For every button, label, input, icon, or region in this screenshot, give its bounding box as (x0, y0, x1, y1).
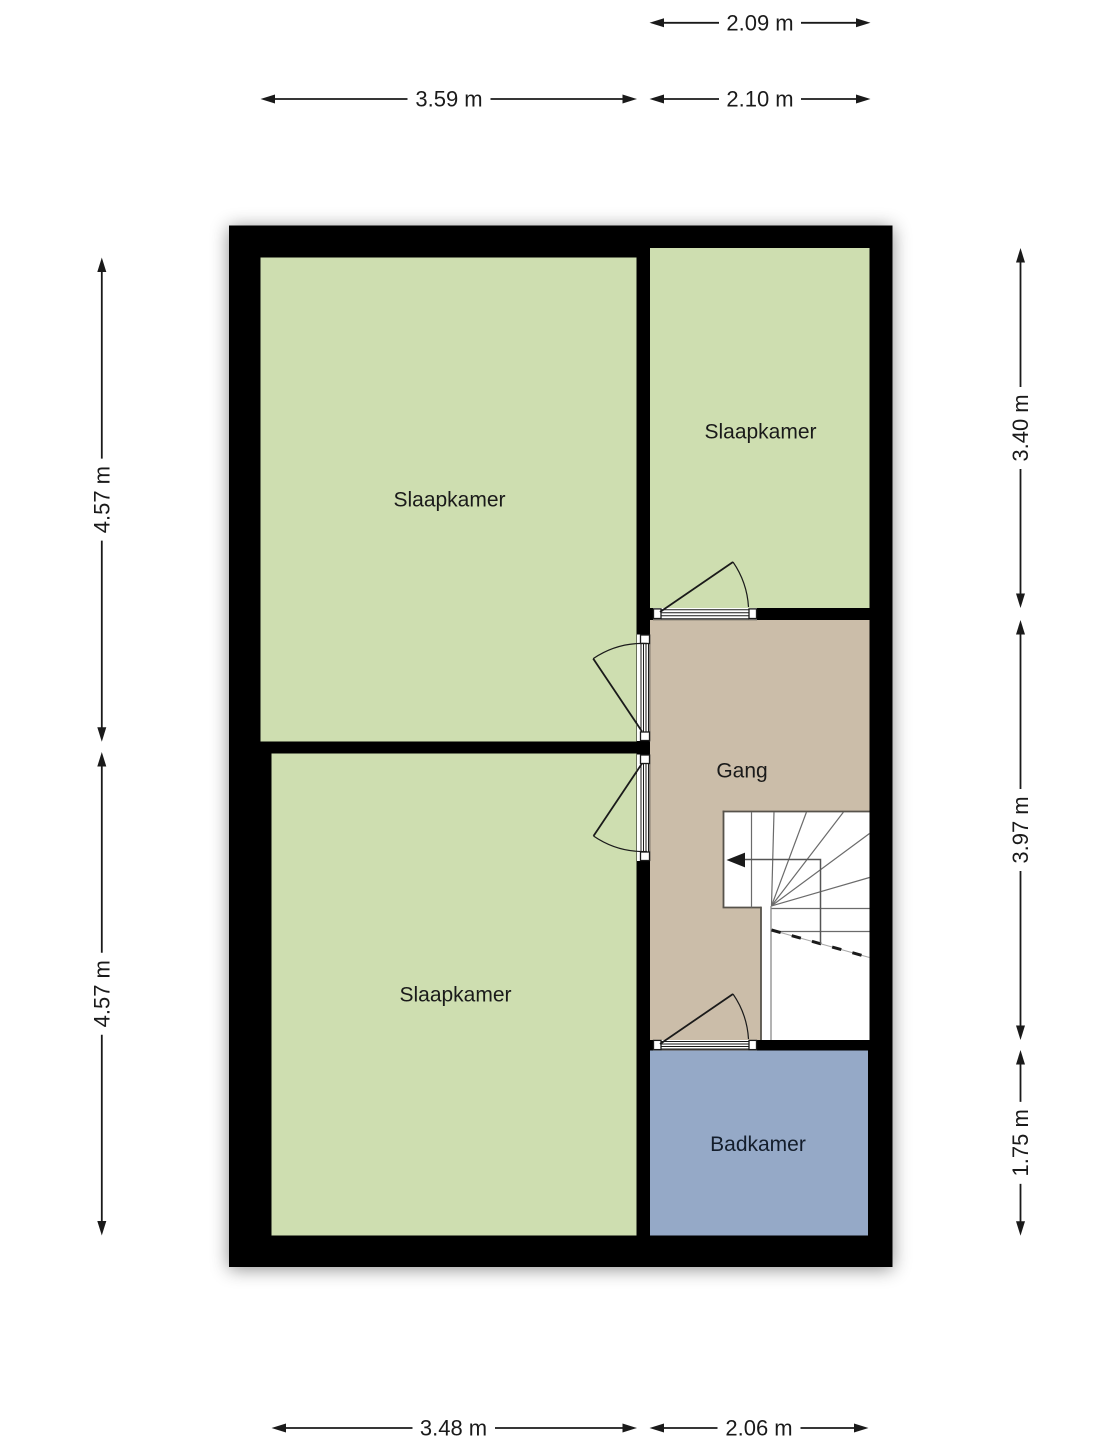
svg-text:3.97 m: 3.97 m (1008, 796, 1033, 863)
svg-text:2.09 m: 2.09 m (726, 10, 793, 35)
svg-text:3.48 m: 3.48 m (420, 1416, 487, 1441)
svg-text:4.57 m: 4.57 m (89, 466, 114, 533)
svg-text:1.75 m: 1.75 m (1008, 1109, 1033, 1176)
svg-text:Slaapkamer: Slaapkamer (399, 984, 511, 1007)
svg-text:4.57 m: 4.57 m (89, 960, 114, 1027)
svg-text:3.40 m: 3.40 m (1008, 394, 1033, 461)
svg-text:Slaapkamer: Slaapkamer (704, 421, 816, 444)
svg-text:Slaapkamer: Slaapkamer (393, 489, 505, 512)
svg-text:Badkamer: Badkamer (710, 1133, 806, 1156)
svg-text:2.06 m: 2.06 m (725, 1416, 792, 1441)
svg-text:Gang: Gang (716, 760, 767, 783)
svg-text:2.10 m: 2.10 m (726, 87, 793, 112)
svg-text:3.59 m: 3.59 m (415, 87, 482, 112)
